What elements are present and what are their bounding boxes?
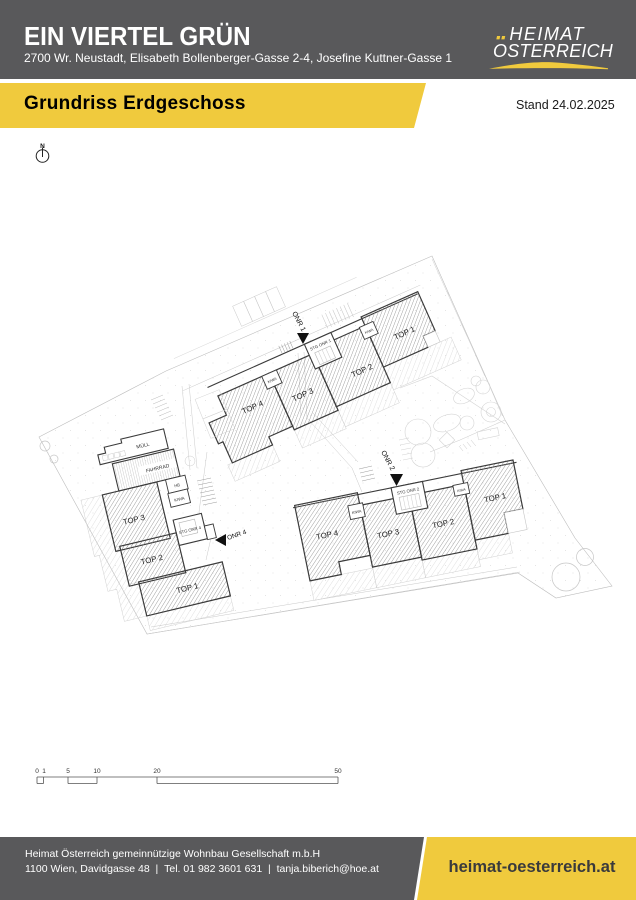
svg-text:10: 10 [93, 768, 101, 775]
svg-text:20: 20 [153, 768, 161, 775]
svg-text:1: 1 [42, 768, 46, 775]
svg-text:OSTERREICH: OSTERREICH [493, 41, 614, 61]
svg-text:0: 0 [35, 768, 39, 775]
svg-text:N: N [40, 143, 45, 150]
svg-text:5: 5 [66, 768, 70, 775]
svg-text:50: 50 [334, 768, 342, 775]
